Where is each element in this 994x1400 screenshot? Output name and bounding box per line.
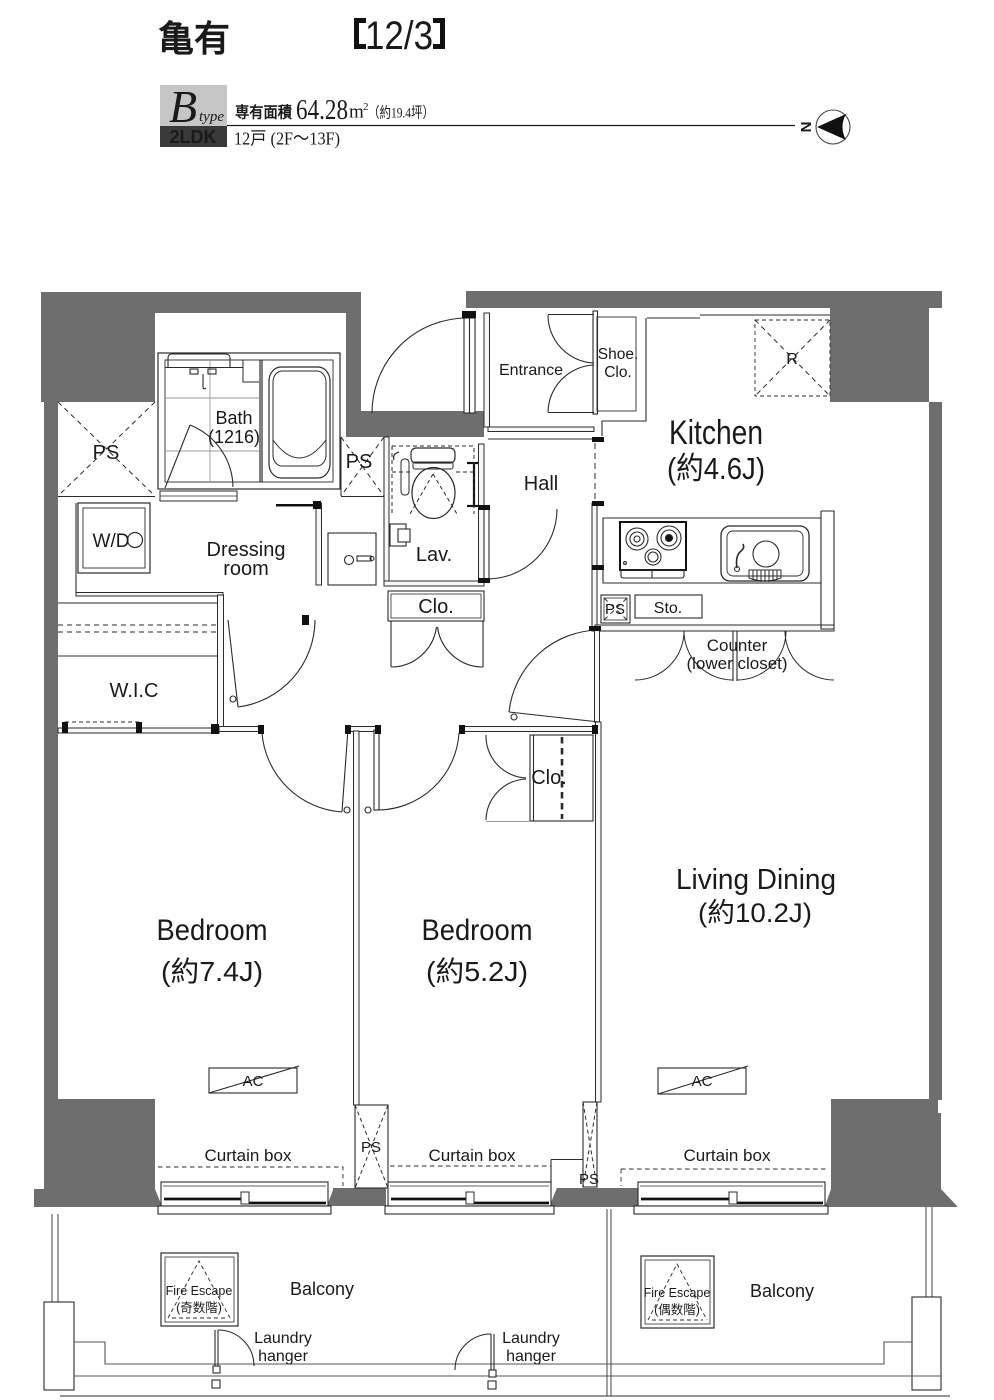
svg-text:Shoe.: Shoe.: [598, 346, 639, 363]
svg-text:Living Dining: Living Dining: [676, 864, 836, 896]
svg-text:Fire Escape: Fire Escape: [166, 1284, 233, 1298]
svg-text:AC: AC: [243, 1073, 264, 1090]
svg-text:12戸 (2F～13F): 12戸 (2F～13F): [234, 129, 340, 150]
svg-text:Bedroom: Bedroom: [422, 914, 533, 947]
svg-text:Entrance: Entrance: [499, 362, 563, 379]
svg-text:(約5.2J): (約5.2J): [426, 956, 528, 987]
svg-text:W/D: W/D: [93, 531, 130, 552]
svg-text:(約4.6J): (約4.6J): [667, 451, 765, 486]
svg-text:Curtain box: Curtain box: [205, 1146, 292, 1165]
svg-text:PS: PS: [361, 1139, 381, 1156]
svg-text:Lav.: Lav.: [416, 544, 452, 566]
svg-text:B: B: [169, 81, 197, 132]
svg-text:AC: AC: [692, 1073, 713, 1090]
svg-text:Balcony: Balcony: [290, 1279, 354, 1299]
svg-text:PS: PS: [346, 451, 373, 473]
svg-text:room: room: [223, 558, 269, 580]
svg-text:PS: PS: [579, 1171, 599, 1188]
svg-text:専有面積: 専有面積: [235, 103, 292, 122]
svg-text:hanger: hanger: [258, 1348, 308, 1365]
svg-text:Bedroom: Bedroom: [157, 914, 268, 947]
svg-text:Clo.: Clo.: [531, 767, 567, 789]
svg-text:(奇数階): (奇数階): [176, 1300, 222, 1315]
svg-text:64.28: 64.28: [296, 95, 348, 126]
svg-text:Curtain box: Curtain box: [429, 1146, 516, 1165]
svg-text:Kitchen: Kitchen: [669, 414, 763, 452]
svg-text:2LDK: 2LDK: [169, 127, 216, 147]
svg-text:hanger: hanger: [506, 1348, 556, 1365]
svg-text:m: m: [349, 102, 364, 123]
svg-text:(約10.2J): (約10.2J): [698, 898, 812, 928]
svg-text:R: R: [786, 351, 798, 368]
svg-text:(1216): (1216): [208, 427, 260, 447]
svg-text:Laundry: Laundry: [502, 1330, 560, 1347]
svg-text:Counter: Counter: [707, 636, 768, 655]
svg-text:PS: PS: [93, 442, 120, 464]
svg-text:Hall: Hall: [524, 473, 558, 495]
svg-text:Fire Escape: Fire Escape: [644, 1286, 711, 1300]
svg-text:PS: PS: [605, 601, 625, 618]
svg-text:Clo.: Clo.: [418, 596, 454, 618]
svg-text:Sto.: Sto.: [654, 600, 682, 617]
svg-text:Curtain box: Curtain box: [684, 1146, 771, 1165]
svg-text:type: type: [199, 109, 224, 125]
svg-text:(lower closet): (lower closet): [686, 654, 787, 673]
svg-text:亀有: 亀有: [158, 18, 230, 59]
svg-text:Clo.: Clo.: [604, 364, 632, 381]
svg-text:N: N: [798, 122, 815, 133]
svg-text:W.I.C: W.I.C: [110, 680, 159, 702]
svg-text:Laundry: Laundry: [254, 1330, 312, 1347]
svg-text:(偶数階): (偶数階): [654, 1302, 700, 1317]
svg-text:（約19.4坪）: （約19.4坪）: [368, 105, 434, 122]
svg-text:Bath: Bath: [215, 408, 252, 428]
svg-text:12/3: 12/3: [365, 14, 433, 58]
svg-text:Balcony: Balcony: [750, 1281, 814, 1301]
svg-text:(約7.4J): (約7.4J): [161, 956, 263, 987]
